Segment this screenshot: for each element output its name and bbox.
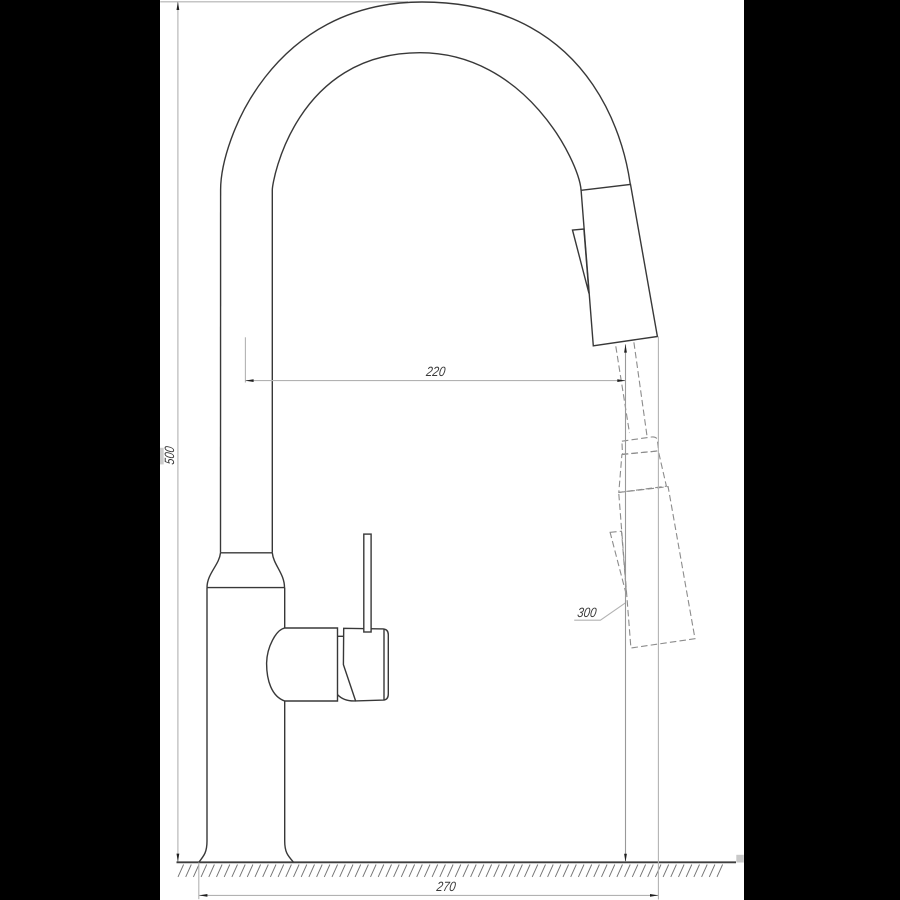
svg-text:220: 220 (424, 364, 446, 379)
svg-text:300: 300 (576, 605, 597, 620)
svg-text:500: 500 (162, 445, 177, 465)
svg-text:270: 270 (435, 879, 457, 894)
